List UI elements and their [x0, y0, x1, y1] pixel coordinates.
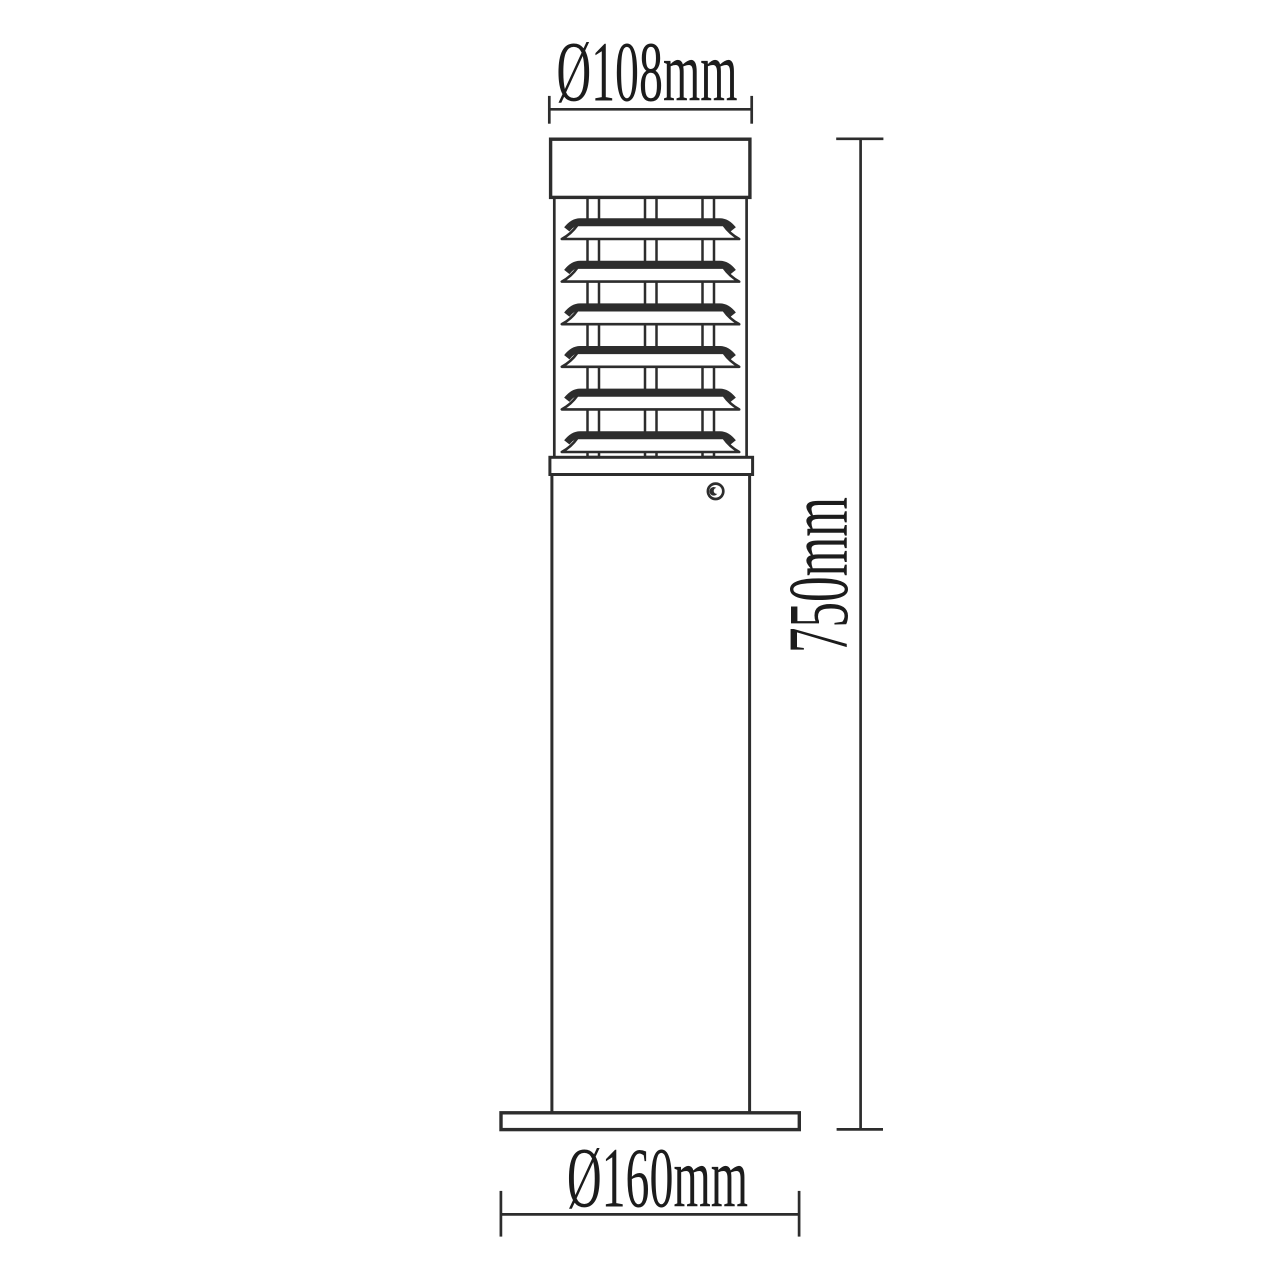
dimension-overall-height: 750mm	[770, 139, 883, 1130]
louver-fin	[562, 392, 739, 409]
louver-fin	[562, 264, 739, 281]
screw-slot-highlight	[714, 488, 720, 494]
base-diameter-label: Ø160mm	[567, 1130, 748, 1226]
top-cap	[551, 139, 750, 197]
louver-fin	[562, 222, 739, 239]
lamp-collar	[550, 457, 753, 474]
louver-fin	[562, 349, 739, 366]
lamp-body	[552, 475, 750, 1113]
dimension-base-diameter: Ø160mm	[501, 1130, 799, 1237]
top-diameter-label: Ø108mm	[557, 24, 738, 120]
drawing-page: Ø108mm 750mm Ø160mm	[0, 0, 1280, 1280]
overall-height-label: 750mm	[770, 497, 866, 653]
dimension-top-diameter: Ø108mm	[549, 24, 751, 124]
base-plate	[501, 1113, 799, 1130]
louver-fin	[562, 307, 739, 324]
louver-fin	[562, 435, 739, 452]
technical-drawing-canvas: Ø108mm 750mm Ø160mm	[0, 0, 1280, 1280]
bollard-light	[501, 139, 799, 1129]
